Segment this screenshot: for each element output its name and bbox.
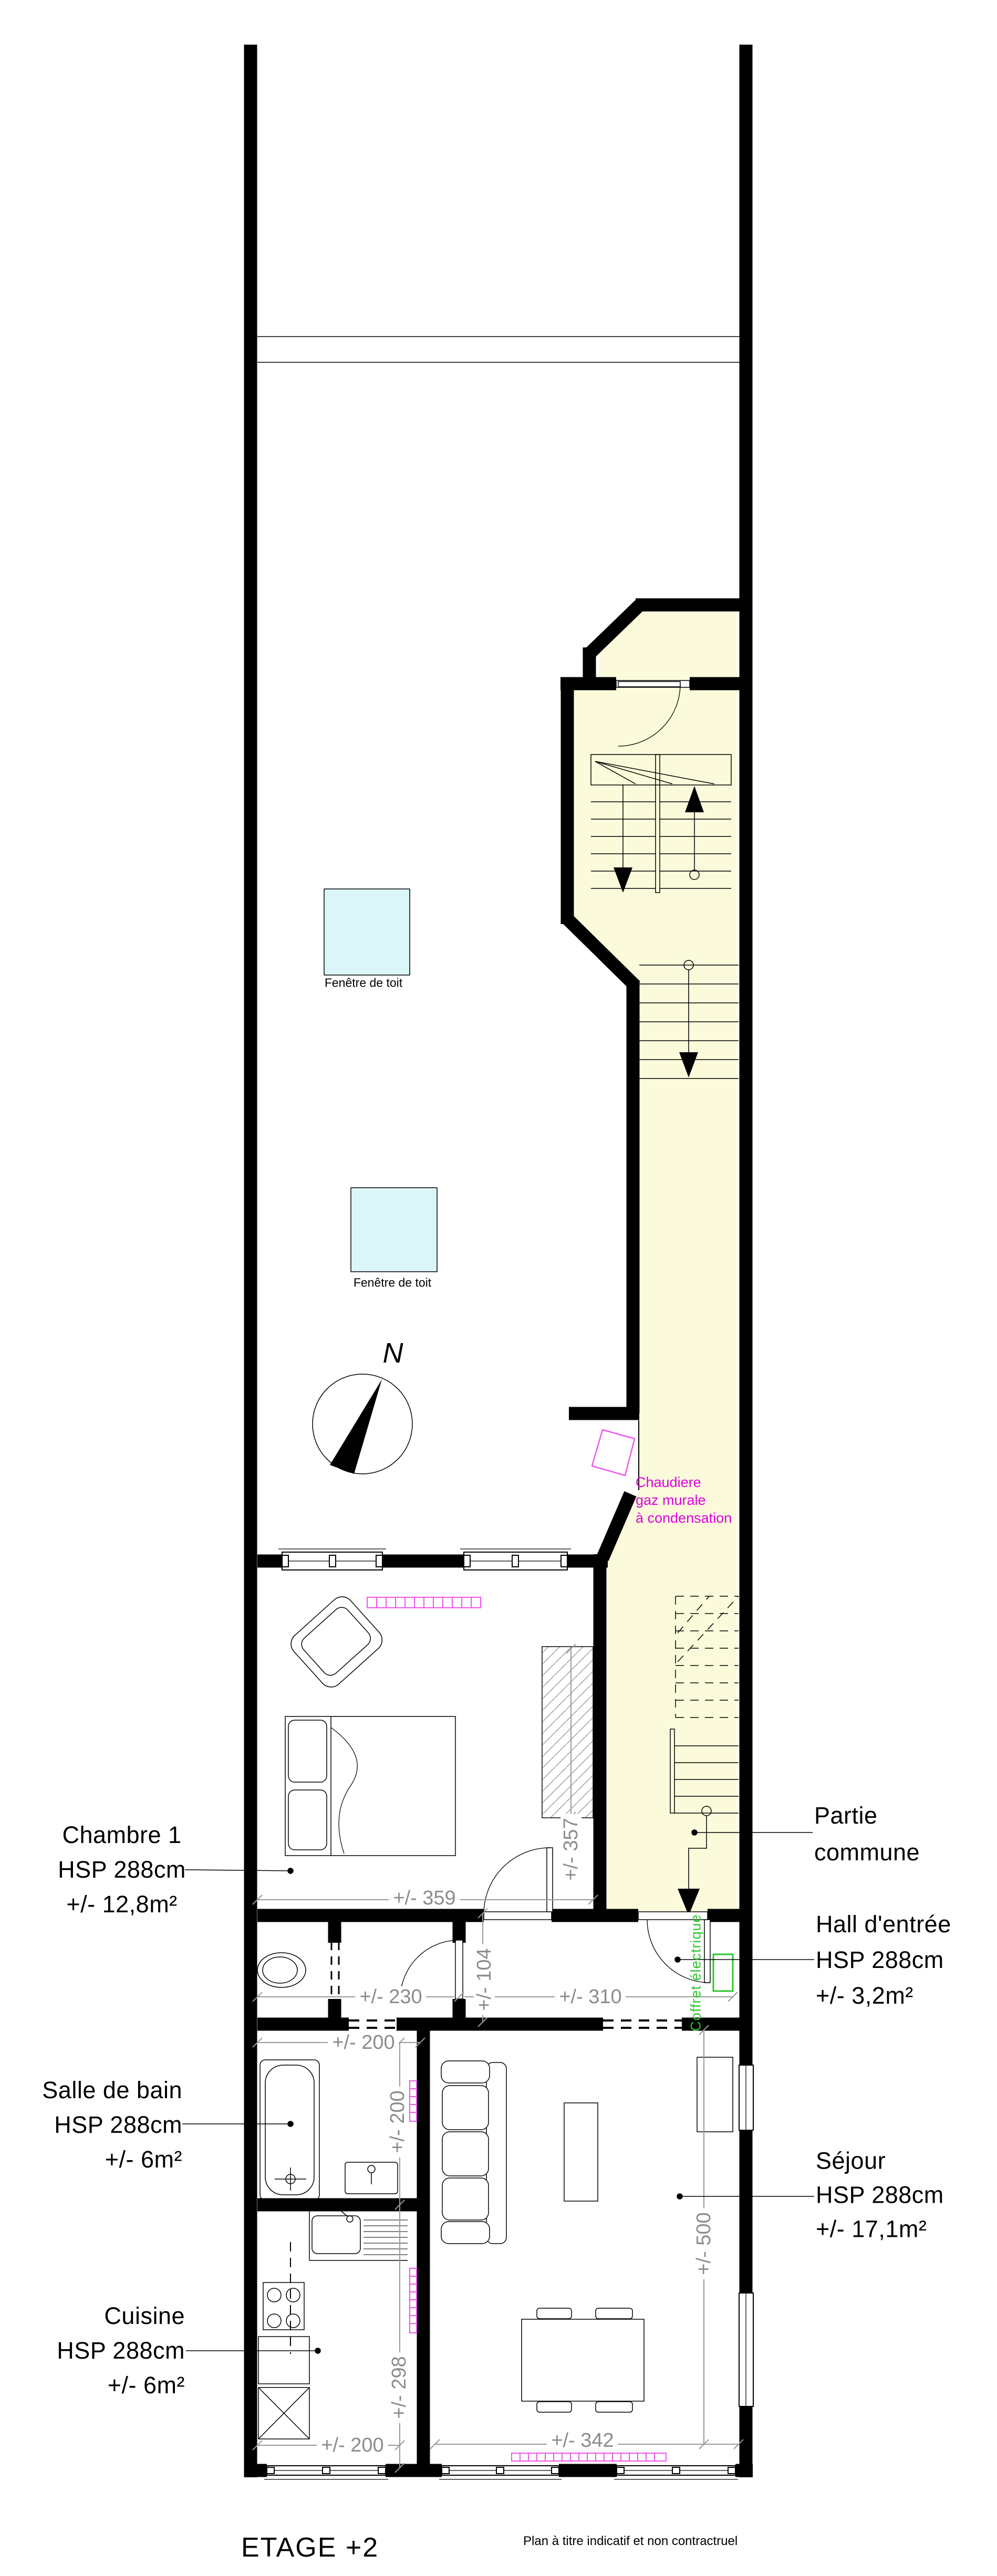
wall-niche <box>697 2057 733 2132</box>
floorplan-page: Fenêtre de toit Fenêtre de toit N Chaudi… <box>0 0 997 2576</box>
boiler-note-line1: Chaudiere <box>636 1473 732 1491</box>
room-label-cuisine: Cuisine HSP 288cm +/- 6m² <box>57 2299 185 2403</box>
sejour-name: Séjour <box>816 2144 944 2178</box>
stove <box>263 2282 304 2330</box>
door-bedroom <box>484 1848 553 1920</box>
skylight-2-icon <box>351 1188 437 1272</box>
chambre1-name: Chambre 1 <box>58 1818 186 1852</box>
chambre1-area: +/- 12,8m² <box>58 1887 186 1922</box>
toilet <box>257 1953 306 1987</box>
partie-commune-line2: commune <box>814 1834 920 1871</box>
cuisine-area: +/- 6m² <box>57 2368 185 2403</box>
sejour-area: +/- 17,1m² <box>816 2212 944 2246</box>
window-bedroom-1 <box>278 1549 386 1570</box>
kitchen-cabinet <box>258 2337 309 2384</box>
sofa <box>441 2061 506 2244</box>
room-label-hall-entree: Hall d'entrée HSP 288cm +/- 3,2m² <box>816 1907 951 2014</box>
opening-dashes <box>331 1913 738 2028</box>
sdb-ceiling: HSP 288cm <box>42 2108 182 2142</box>
roof-ridge-lines <box>257 337 740 362</box>
sdb-name: Salle de bain <box>42 2073 182 2108</box>
dining-table <box>522 2308 644 2412</box>
electrical-note: Coffret électrique <box>688 1914 704 2031</box>
window-bedroom-2 <box>460 1549 571 1570</box>
washbasin <box>345 2162 398 2194</box>
boiler-note-line2: gaz murale <box>636 1491 732 1509</box>
radiator-kitchen <box>410 2268 417 2333</box>
window-sejour-right-2 <box>739 2293 753 2406</box>
skylight-1-label: Fenêtre de toit <box>325 976 402 990</box>
hall-ceiling: HSP 288cm <box>816 1942 951 1978</box>
room-label-partie-commune: Partie commune <box>814 1797 920 1871</box>
double-bed <box>285 1716 455 1856</box>
bathtub <box>260 2060 319 2200</box>
chambre1-ceiling: HSP 288cm <box>58 1852 186 1887</box>
compass-icon <box>313 1374 412 1474</box>
window-sejour-right-1 <box>739 2065 753 2130</box>
fridge <box>258 2387 309 2439</box>
dim-chambre-width: +/- 359 <box>389 1888 460 1909</box>
window-bottom-2 <box>439 2466 562 2479</box>
dim-sejour-width: +/- 342 <box>547 2430 618 2451</box>
dim-sdb-width: +/- 200 <box>328 2032 399 2053</box>
dim-cuisine-depth: +/- 298 <box>389 2352 410 2423</box>
dim-placard-height: +/- 357 <box>560 1814 581 1884</box>
wardrobe <box>542 1647 593 1818</box>
disclaimer-text: Plan à titre indicatif et non contractru… <box>523 2534 738 2549</box>
armchair <box>286 1592 387 1692</box>
radiator-sejour <box>512 2453 666 2461</box>
kitchen-sink <box>312 2208 408 2255</box>
boiler-icon <box>592 1430 635 1475</box>
boiler-note-line3: à condensation <box>636 1509 732 1527</box>
boiler-note: Chaudiere gaz murale à condensation <box>636 1473 732 1527</box>
dim-hall-depth: +/- 104 <box>474 1944 495 2015</box>
partie-commune-line1: Partie <box>814 1797 920 1834</box>
window-bottom-3 <box>614 2466 738 2479</box>
dim-sejour-depth: +/- 500 <box>693 2208 714 2279</box>
dim-couloir-width: +/- 230 <box>355 1986 426 2007</box>
page-title: ETAGE +2 <box>241 2532 379 2563</box>
hall-area: +/- 3,2m² <box>816 1978 951 2014</box>
room-label-chambre1: Chambre 1 HSP 288cm +/- 12,8m² <box>58 1818 186 1922</box>
cuisine-name: Cuisine <box>57 2299 185 2333</box>
sejour-ceiling: HSP 288cm <box>816 2178 944 2212</box>
dim-cuisine-width: +/- 200 <box>317 2435 388 2456</box>
sdb-area: +/- 6m² <box>42 2142 182 2177</box>
radiator-bathroom <box>410 2081 417 2121</box>
skylight-2-label: Fenêtre de toit <box>354 1276 431 1290</box>
room-label-sejour: Séjour HSP 288cm +/- 17,1m² <box>816 2144 944 2246</box>
sideboard <box>564 2103 598 2201</box>
window-bottom-1 <box>264 2466 388 2479</box>
room-label-salle-de-bain: Salle de bain HSP 288cm +/- 6m² <box>42 2073 182 2177</box>
hall-name: Hall d'entrée <box>816 1907 951 1942</box>
dim-hall-width: +/- 310 <box>555 1986 626 2007</box>
dim-sdb-depth: +/- 200 <box>387 2086 408 2157</box>
cuisine-ceiling: HSP 288cm <box>57 2333 185 2368</box>
north-label: N <box>383 1337 403 1369</box>
skylight-1-icon <box>324 889 410 975</box>
radiator-bedroom <box>367 1597 481 1608</box>
